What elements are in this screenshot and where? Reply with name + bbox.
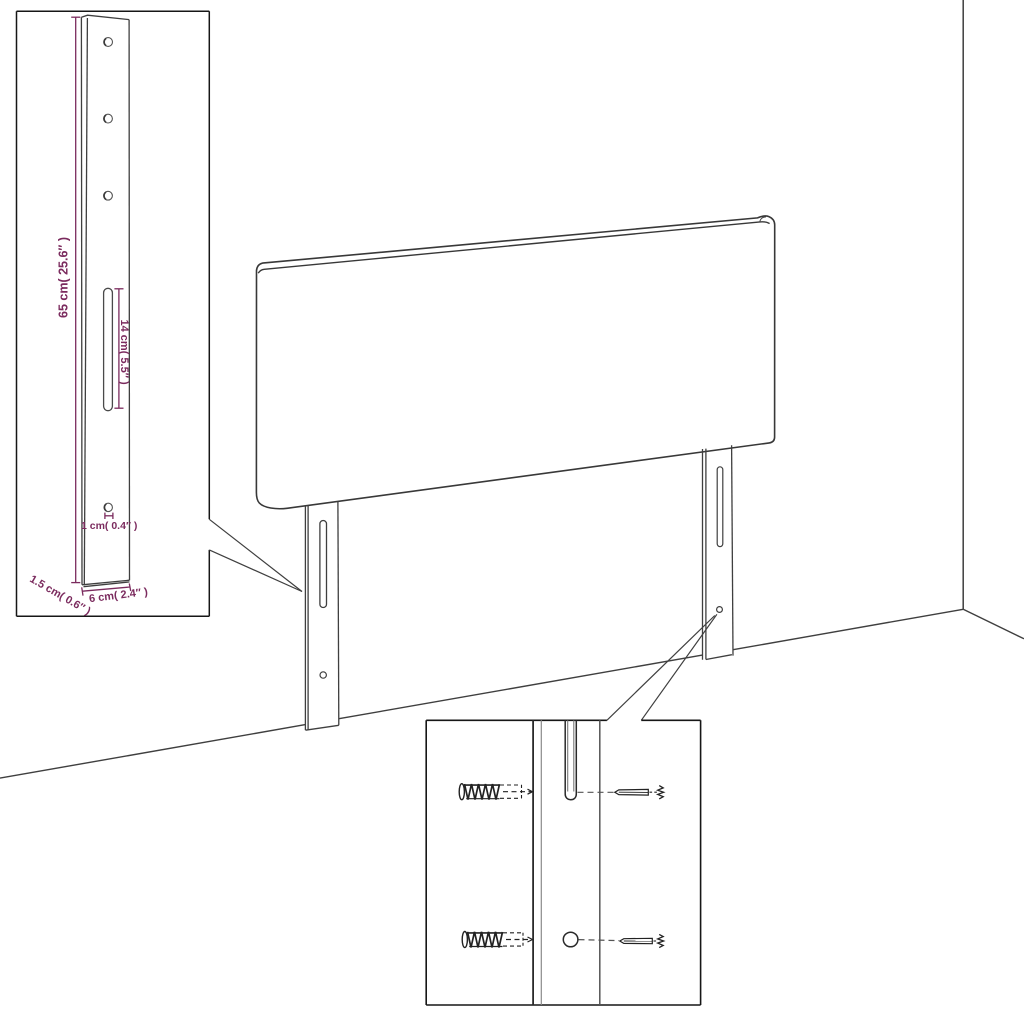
svg-text:6 cm( 2.4″ ): 6 cm( 2.4″ ): [88, 586, 148, 605]
svg-text:14 cm( 5.5″ ): 14 cm( 5.5″ ): [118, 320, 130, 386]
svg-text:1 cm( 0.4″ ): 1 cm( 0.4″ ): [81, 520, 137, 532]
svg-text:65 cm( 25.6″ ): 65 cm( 25.6″ ): [57, 237, 71, 318]
